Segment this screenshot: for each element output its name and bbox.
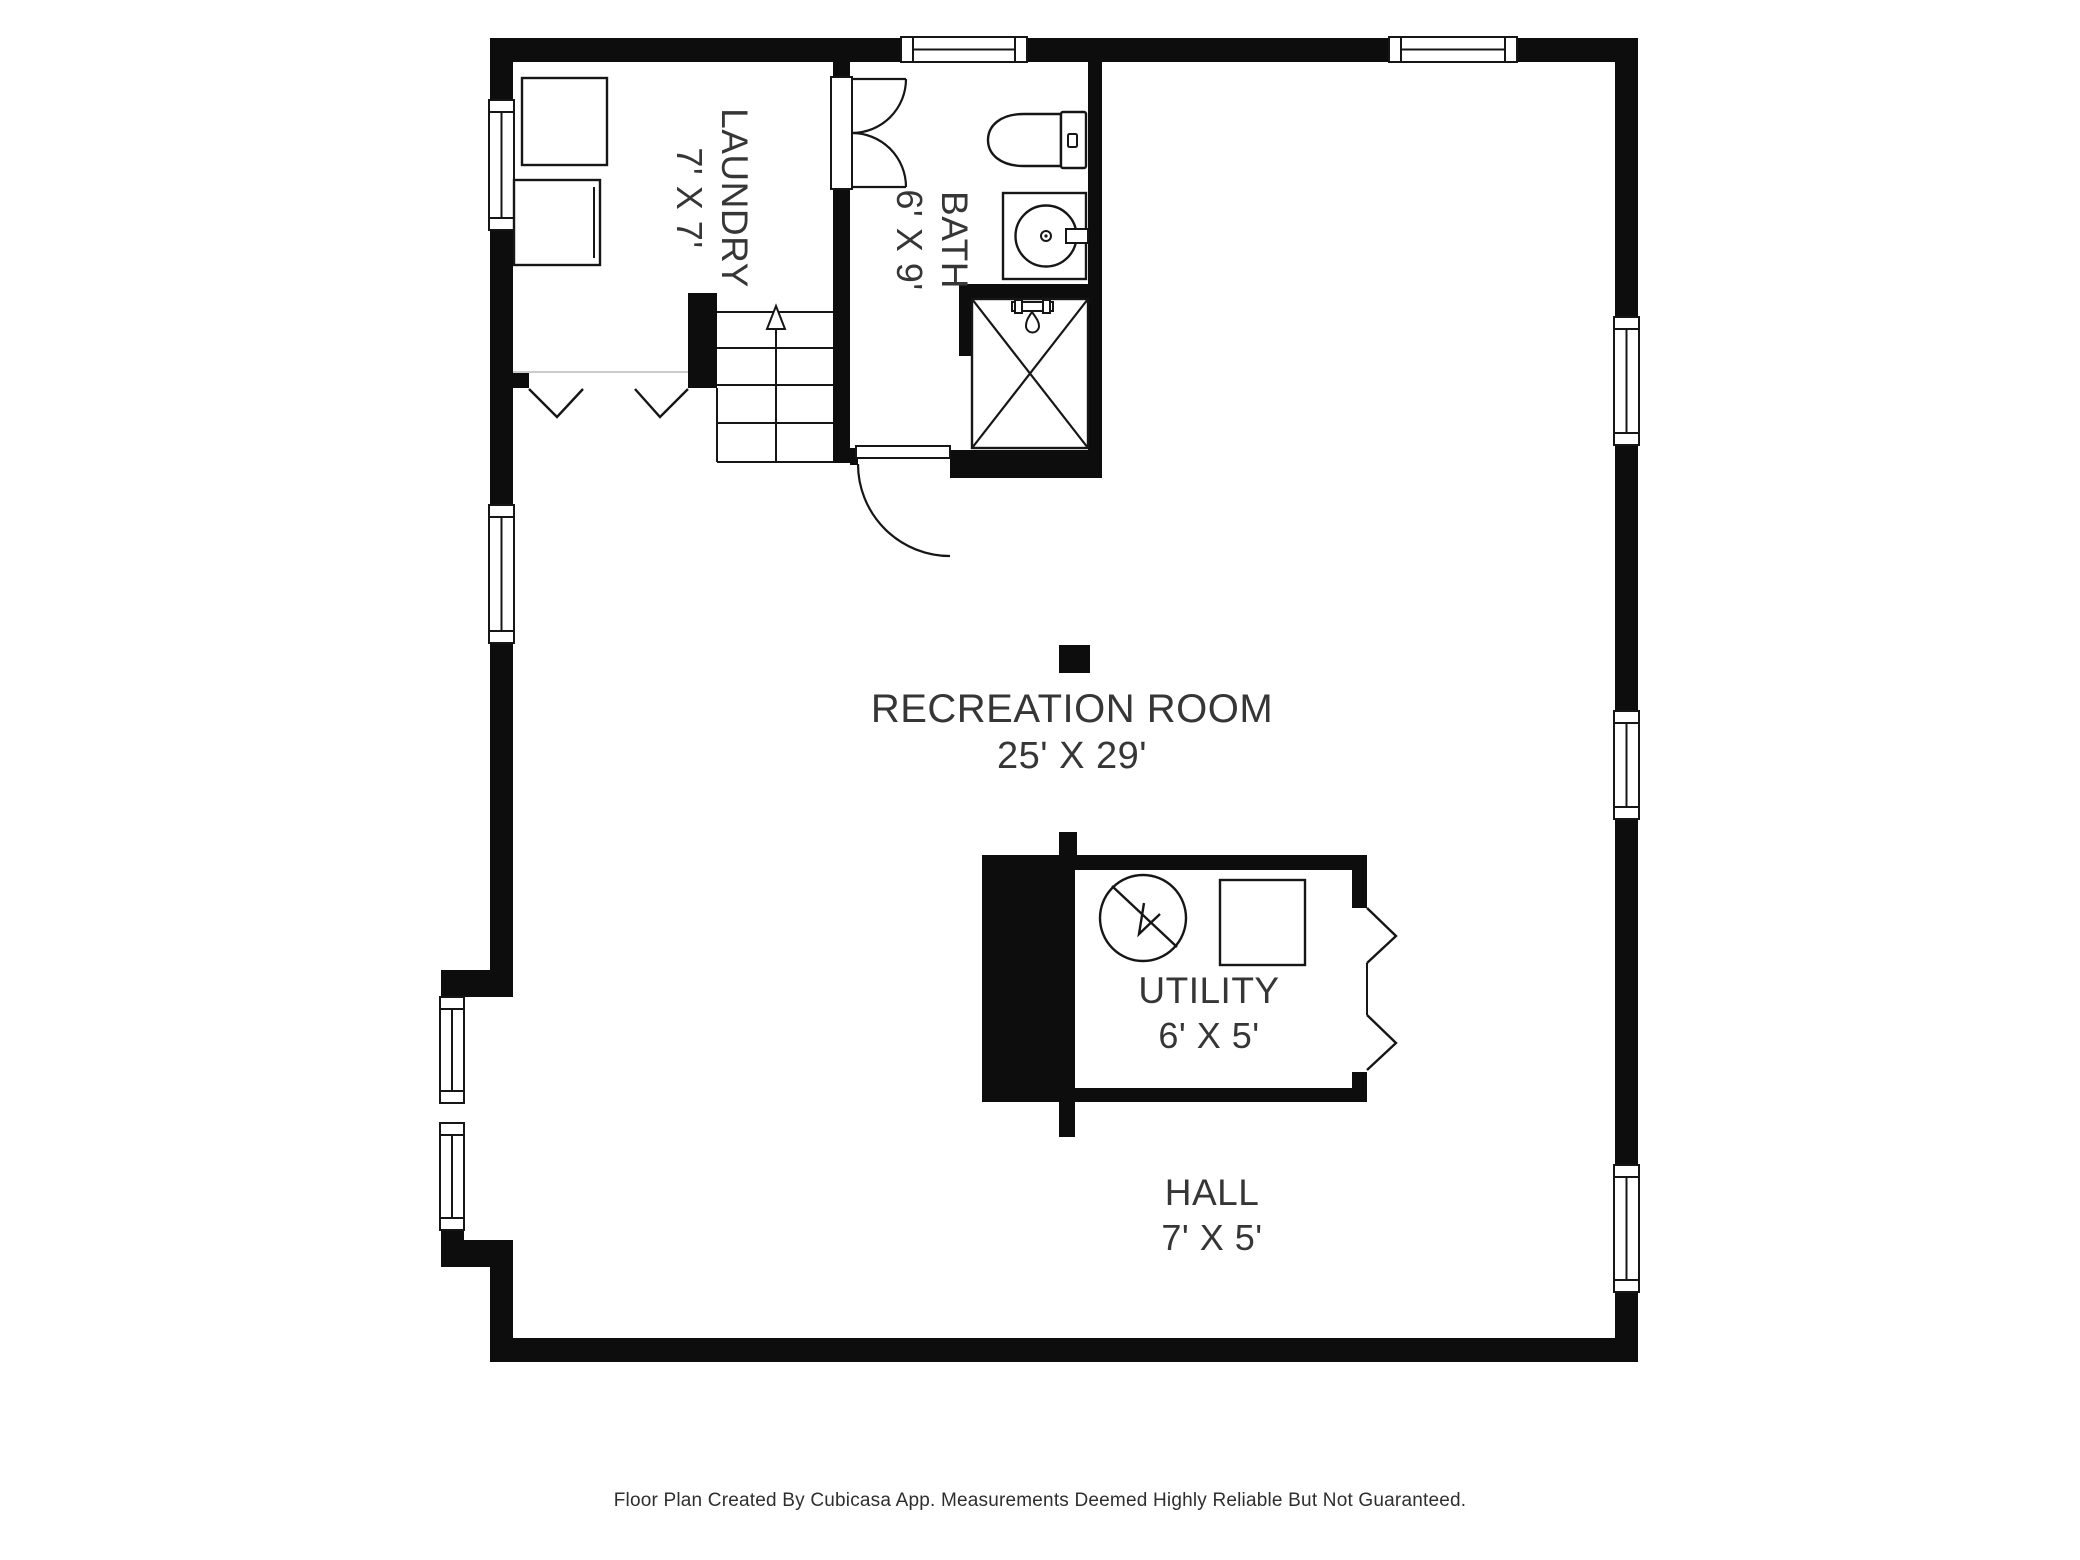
window-offset-upper: [440, 997, 464, 1103]
wall-left-b: [490, 229, 513, 506]
bath-double-door: [831, 77, 906, 189]
utility-dims: 6' X 5': [1138, 1013, 1279, 1058]
water-heater: [1100, 875, 1186, 961]
window-left-laundry: [489, 100, 514, 230]
wall-jog-bottom: [464, 1240, 513, 1267]
utility-label: UTILITY 6' X 5': [1138, 968, 1279, 1058]
wall-bath-main: [833, 187, 850, 463]
floor-plan-page: LAUNDRY 7' X 7' BATH 6' X 9' RECREATION …: [0, 0, 2080, 1560]
window-offset-lower: [440, 1123, 464, 1230]
hall-name: HALL: [1161, 1170, 1262, 1215]
wall-shower-top: [959, 284, 1102, 299]
wall-laundry-stub: [513, 373, 529, 388]
wall-top-mid: [1026, 38, 1390, 62]
wall-bath-right: [1088, 62, 1102, 475]
laundry-dims: 7' X 7': [667, 108, 712, 288]
window-top-b: [1389, 37, 1517, 62]
window-right-1: [1614, 317, 1639, 445]
window-top-a: [901, 37, 1027, 62]
toilet-flush-button: [1068, 134, 1077, 147]
wall-utility-mass: [982, 855, 1075, 1102]
footer-disclaimer: Floor Plan Created By Cubicasa App. Meas…: [0, 1490, 2080, 1512]
wall-offset-bottom: [441, 1229, 464, 1267]
wall-right-c: [1615, 818, 1638, 1166]
wall-bath-bottom: [950, 450, 1102, 478]
support-post: [1059, 645, 1090, 673]
utility-bifold-doors: [1367, 908, 1396, 1070]
washer: [522, 78, 607, 165]
staircase: [717, 306, 833, 462]
laundry-name: LAUNDRY: [712, 108, 757, 288]
dryer: [514, 180, 600, 265]
window-right-2: [1614, 711, 1639, 819]
sink-faucet: [1066, 229, 1088, 243]
wall-right-a: [1615, 38, 1638, 318]
stairs-up-arrow-icon: [767, 306, 785, 329]
wall-utility-stub-bottom: [1059, 1102, 1075, 1137]
wall-top-left: [490, 38, 902, 62]
wall-left-c: [490, 642, 513, 971]
wall-utility-top: [1075, 855, 1367, 870]
wall-right-b: [1615, 444, 1638, 712]
recreation-room-dims: 25' X 29': [871, 733, 1273, 780]
laundry-bifold-doors: [529, 389, 688, 417]
recreation-room-name: RECREATION ROOM: [871, 686, 1273, 733]
shower: [972, 299, 1088, 448]
hall-label: HALL 7' X 5': [1161, 1170, 1262, 1260]
bath-label: BATH 6' X 9': [887, 189, 977, 290]
wall-left-a: [490, 38, 513, 102]
toilet: [988, 112, 1086, 168]
furnace: [1220, 880, 1305, 965]
utility-name: UTILITY: [1138, 968, 1279, 1013]
wall-right-d: [1615, 1291, 1638, 1362]
recreation-room-label: RECREATION ROOM 25' X 29': [871, 686, 1273, 780]
sink: [1003, 193, 1088, 279]
wall-bottom: [490, 1338, 1638, 1362]
window-left-recreation: [489, 505, 514, 643]
wall-utility-bottom: [1075, 1088, 1367, 1102]
wall-jog-top: [441, 970, 513, 997]
laundry-label: LAUNDRY 7' X 7': [667, 108, 757, 288]
window-right-3: [1614, 1165, 1639, 1292]
wall-shower-left: [959, 299, 972, 356]
bath-name: BATH: [932, 189, 977, 290]
wall-stairs-left: [688, 293, 717, 388]
hall-dims: 7' X 5': [1161, 1215, 1262, 1260]
wall-utility-right-top: [1352, 855, 1367, 908]
recreation-room-door: [856, 446, 950, 556]
wall-utility-stub-top: [1059, 832, 1077, 855]
bath-dims: 6' X 9': [887, 189, 932, 290]
floor-plan-drawing: [0, 0, 2080, 1560]
